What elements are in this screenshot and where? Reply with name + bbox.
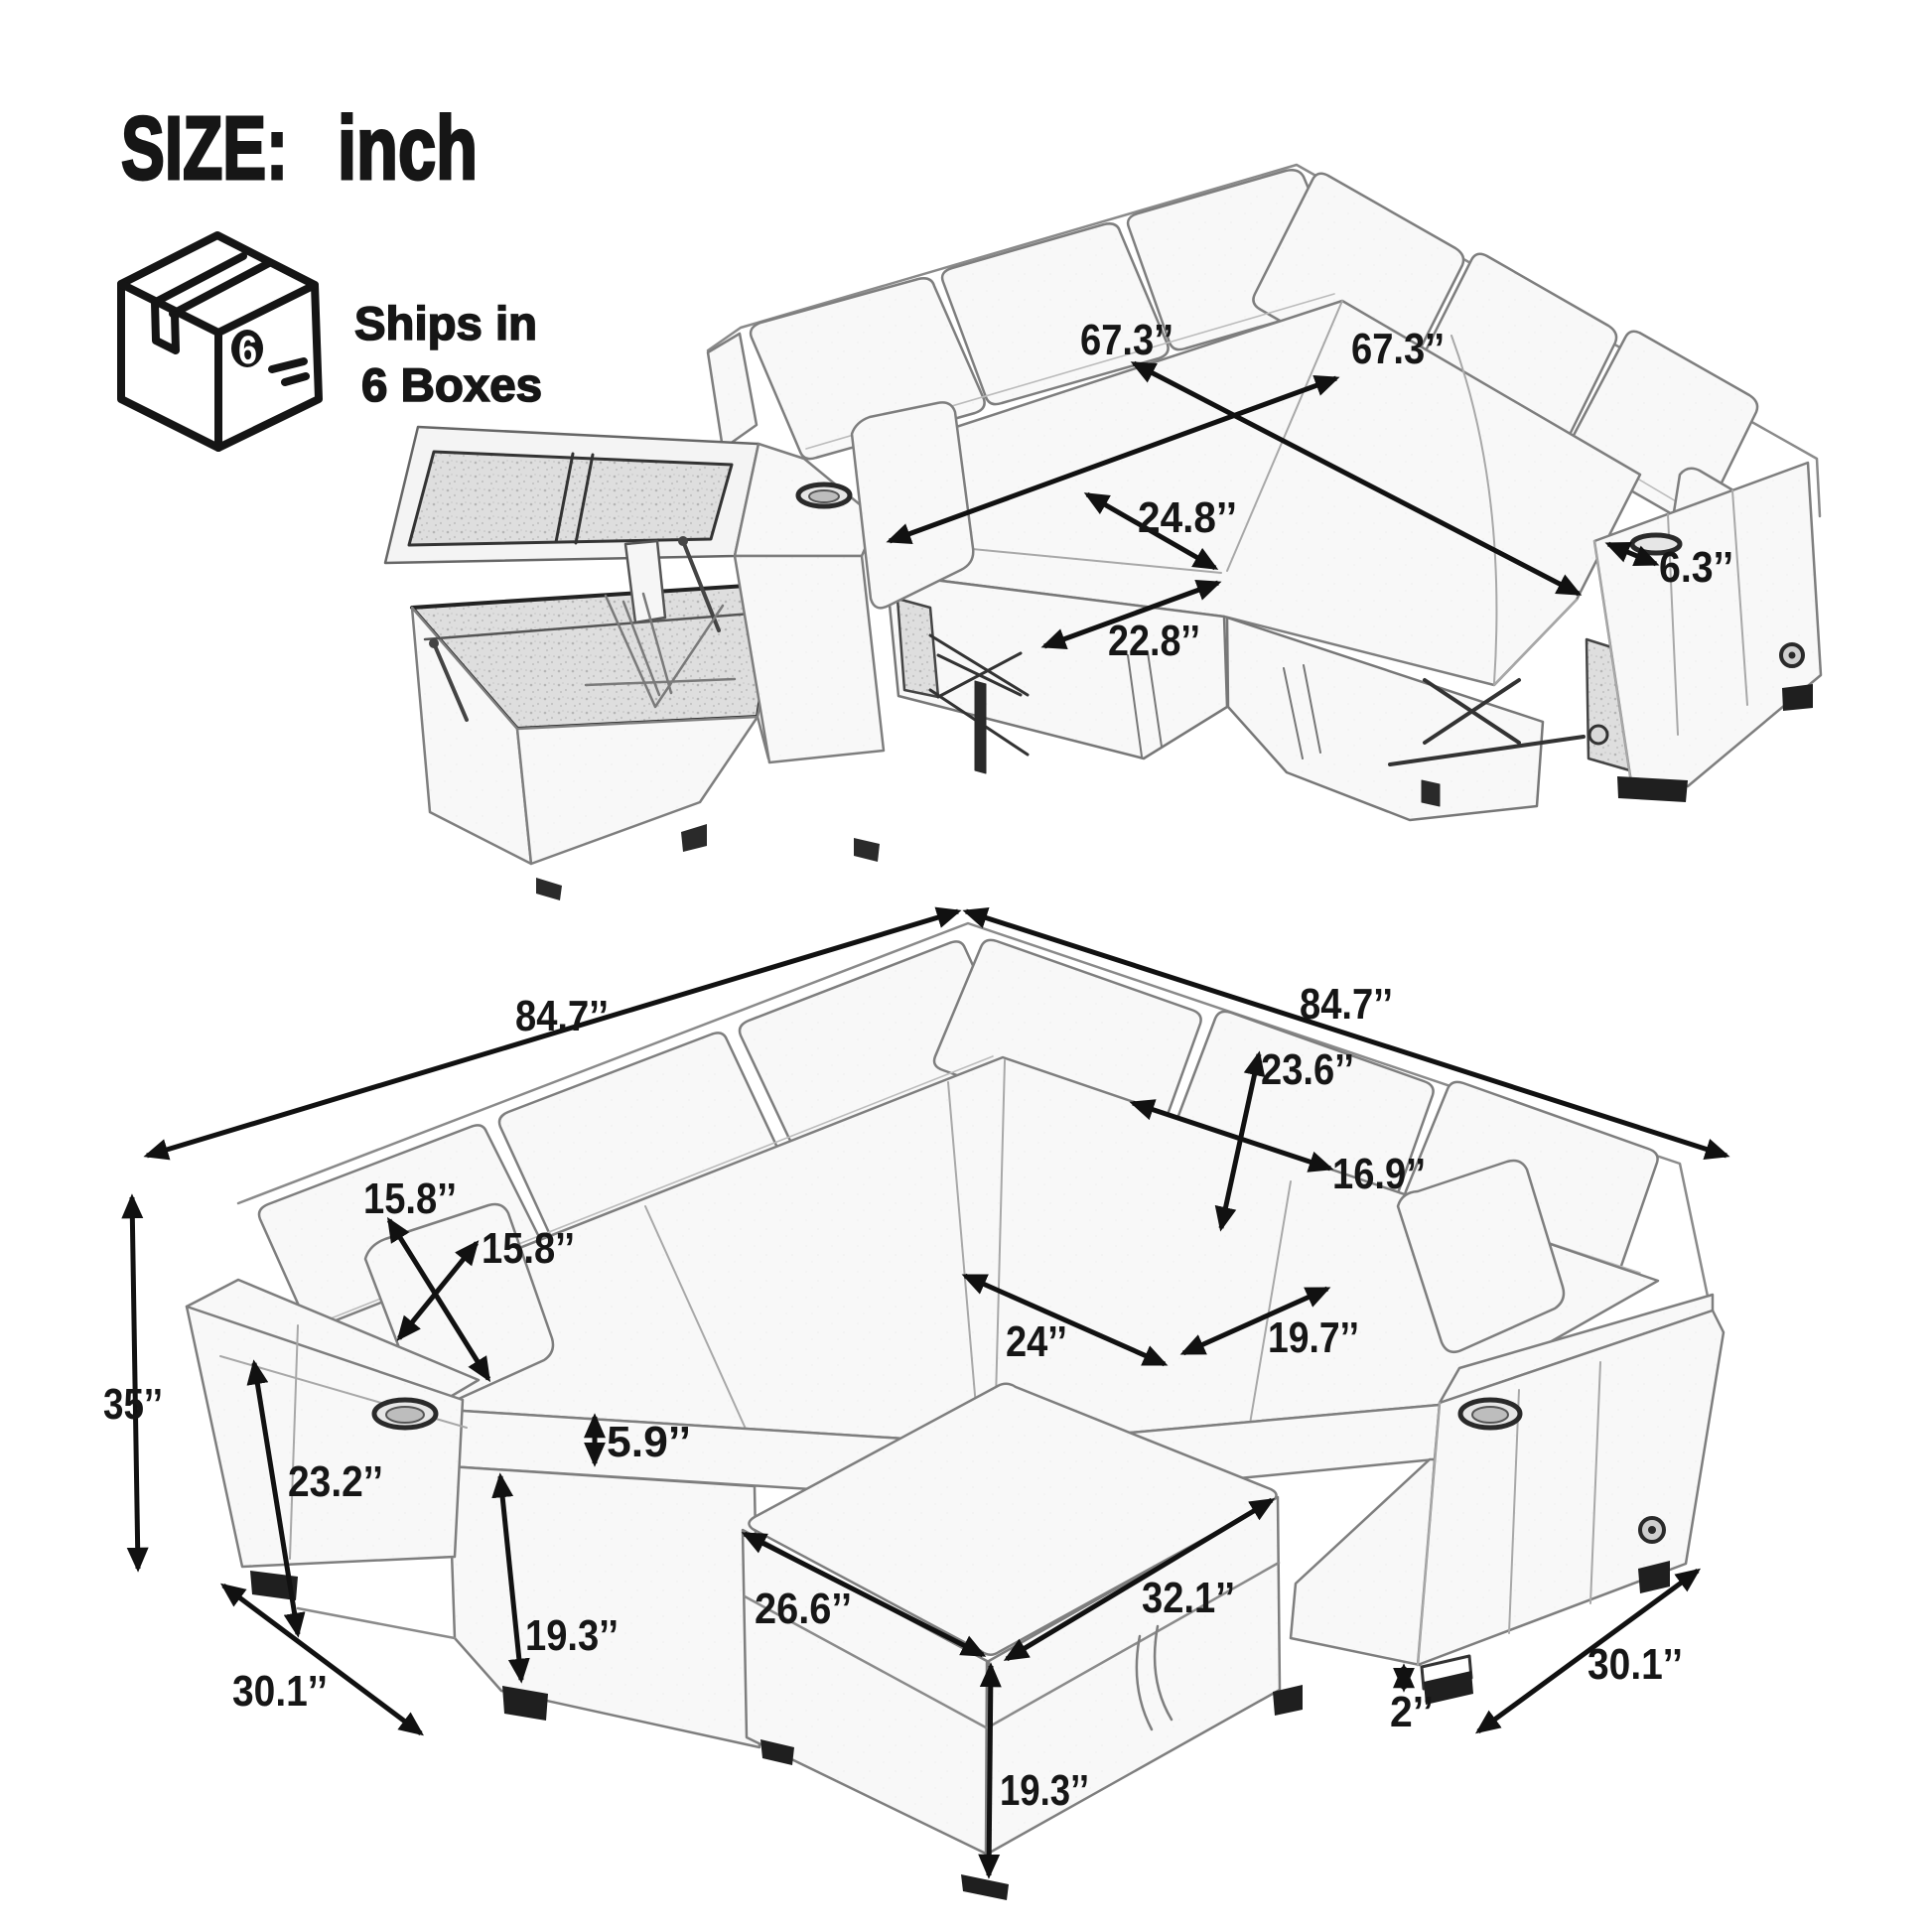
svg-text:24’’: 24’’ <box>1006 1317 1067 1366</box>
svg-text:6 Boxes: 6 Boxes <box>361 358 542 411</box>
svg-text:26.6’’: 26.6’’ <box>755 1585 852 1633</box>
svg-text:35’’: 35’’ <box>103 1380 163 1429</box>
svg-text:2’’: 2’’ <box>1390 1688 1434 1736</box>
svg-text:5.9’’: 5.9’’ <box>607 1418 691 1466</box>
svg-text:23.2’’: 23.2’’ <box>288 1457 383 1506</box>
svg-text:30.1’’: 30.1’’ <box>232 1667 328 1716</box>
svg-text:6: 6 <box>238 329 257 372</box>
svg-text:15.8’’: 15.8’’ <box>363 1174 457 1223</box>
svg-text:6.3’’: 6.3’’ <box>1659 543 1733 592</box>
svg-text:inch: inch <box>338 99 478 199</box>
svg-text:67.3’’: 67.3’’ <box>1351 325 1445 373</box>
svg-text:Ships in: Ships in <box>354 297 537 349</box>
svg-text:19.3’’: 19.3’’ <box>1000 1766 1089 1815</box>
svg-text:SIZE:: SIZE: <box>121 99 288 199</box>
svg-text:30.1’’: 30.1’’ <box>1587 1640 1683 1689</box>
svg-text:16.9’’: 16.9’’ <box>1332 1150 1426 1198</box>
svg-text:84.7’’: 84.7’’ <box>515 992 609 1040</box>
svg-text:19.7’’: 19.7’’ <box>1268 1313 1359 1362</box>
svg-text:15.8’’: 15.8’’ <box>482 1224 575 1273</box>
svg-text:24.8’’: 24.8’’ <box>1138 493 1237 542</box>
svg-text:19.3’’: 19.3’’ <box>525 1611 619 1660</box>
svg-text:67.3’’: 67.3’’ <box>1080 316 1173 364</box>
svg-text:32.1’’: 32.1’’ <box>1142 1574 1235 1622</box>
svg-text:22.8’’: 22.8’’ <box>1108 617 1200 665</box>
svg-text:84.7’’: 84.7’’ <box>1300 980 1393 1029</box>
svg-text:23.6’’: 23.6’’ <box>1261 1045 1354 1094</box>
